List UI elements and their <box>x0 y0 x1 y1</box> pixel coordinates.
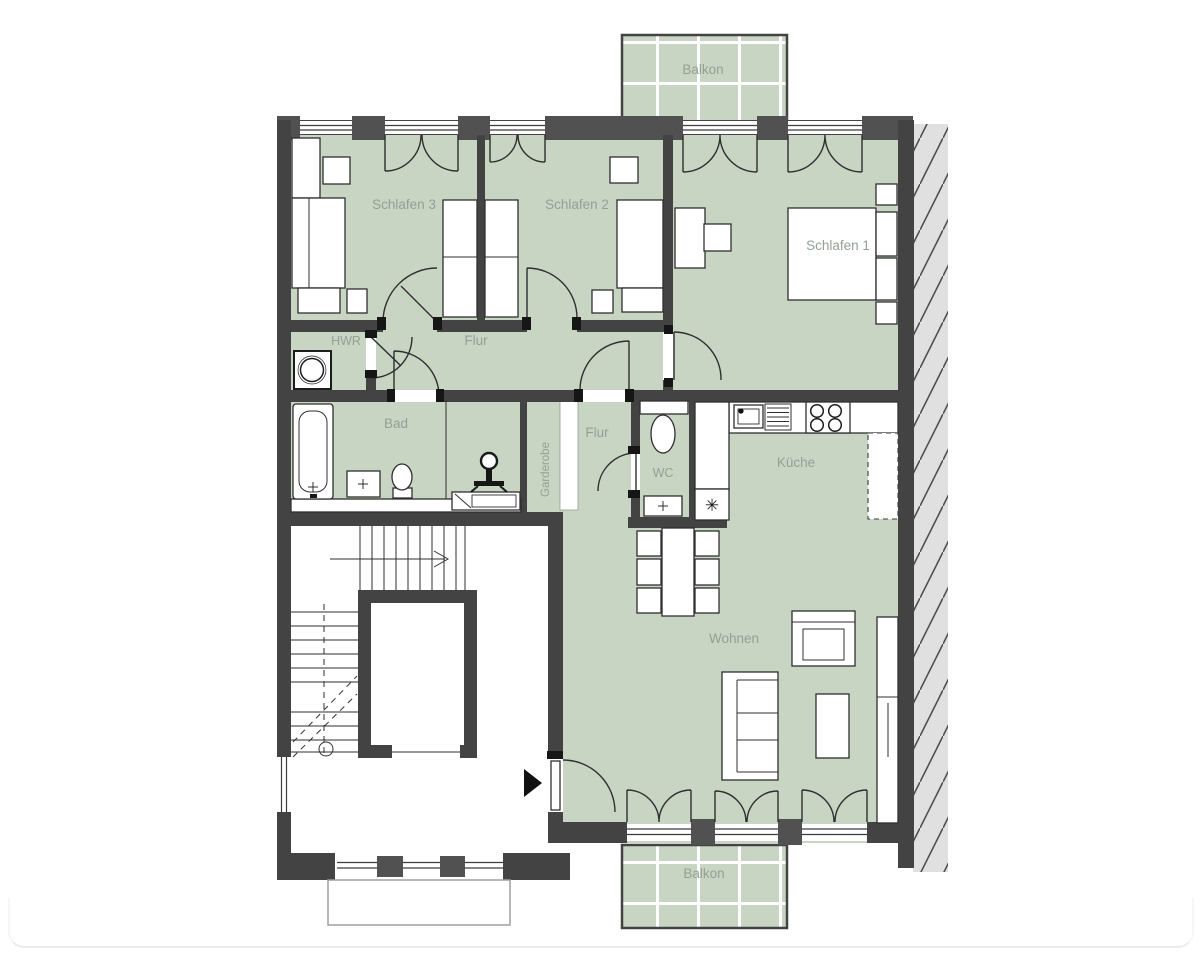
desk-chair <box>704 224 731 251</box>
appliance-marker: ✳ <box>705 496 719 516</box>
bed-foot-box <box>298 288 340 313</box>
garderobe-closet <box>560 400 578 510</box>
dining-chair <box>695 559 719 585</box>
bed-foot-box <box>622 288 663 312</box>
nightstand <box>876 302 897 324</box>
window-stairwell-left <box>277 757 291 812</box>
window-top-schlafen1 <box>788 121 862 134</box>
pillow <box>876 212 897 256</box>
windows-stairwell-bottom <box>337 856 503 877</box>
window-top-1 <box>300 121 352 134</box>
shower-head-icon <box>481 453 497 469</box>
room-label-garderobe: Garderobe <box>540 442 552 497</box>
dining-chair <box>695 588 719 613</box>
pillow <box>876 258 897 300</box>
room-label-flur: Flur <box>464 333 488 348</box>
room-label-kueche: Küche <box>777 455 815 470</box>
dining-set <box>637 528 719 616</box>
dining-chair <box>637 588 661 613</box>
neighbour-wall-hatch <box>913 124 948 872</box>
coffee-table <box>816 694 849 758</box>
cabinet <box>877 617 898 823</box>
floor-plan-page: ✳ <box>0 0 1200 953</box>
kitchen-tall-units <box>868 433 898 519</box>
bed <box>617 200 663 288</box>
stove <box>806 402 850 433</box>
washing-machine-icon <box>294 351 331 389</box>
double-bed <box>788 208 876 300</box>
armchair <box>792 611 855 666</box>
page-card-edge <box>8 898 1194 948</box>
room-label-balkon-top: Balkon <box>682 62 723 77</box>
toilet-wc <box>651 415 675 453</box>
toilet-cistern <box>640 401 688 414</box>
room-label-schlafen1: Schlafen 1 <box>806 238 870 253</box>
nightstand <box>610 157 638 183</box>
dining-chair <box>637 531 661 556</box>
sink-wc <box>644 496 682 516</box>
balcony-doors-wohnen <box>627 824 867 841</box>
bathtub <box>293 404 333 499</box>
sofa <box>722 672 778 780</box>
floor-plan: ✳ <box>0 0 1200 953</box>
kitchen-sink <box>734 404 791 430</box>
wardrobe <box>485 200 518 317</box>
nightstand <box>876 184 897 205</box>
toilet-bad <box>392 464 412 498</box>
nightstand <box>347 289 367 313</box>
room-label-schlafen3: Schlafen 3 <box>372 197 436 212</box>
kitchen-counter-left <box>695 402 729 489</box>
room-label-wc: WC <box>653 466 674 480</box>
room-label-balkon-bottom: Balkon <box>683 866 724 881</box>
dining-chair <box>695 531 719 556</box>
wardrobe <box>292 138 320 198</box>
sink-bad <box>347 471 380 497</box>
room-label-flur2: Flur <box>585 425 609 440</box>
side-table <box>323 157 350 184</box>
nightstand <box>592 290 613 313</box>
desk <box>675 208 705 268</box>
room-label-wohnen: Wohnen <box>709 631 759 646</box>
balcony-door-schlafen1 <box>683 121 757 134</box>
room-label-schlafen2: Schlafen 2 <box>545 197 609 212</box>
elevator <box>358 590 477 759</box>
wardrobe <box>443 200 477 317</box>
bed <box>292 198 345 288</box>
window-top-schlafen3 <box>385 121 458 134</box>
dining-table <box>662 528 694 616</box>
dining-chair <box>637 559 661 585</box>
room-label-hwr: HWR <box>331 334 361 348</box>
room-label-bad: Bad <box>384 416 408 431</box>
balcony-top <box>622 35 787 122</box>
window-top-schlafen2 <box>490 121 545 134</box>
